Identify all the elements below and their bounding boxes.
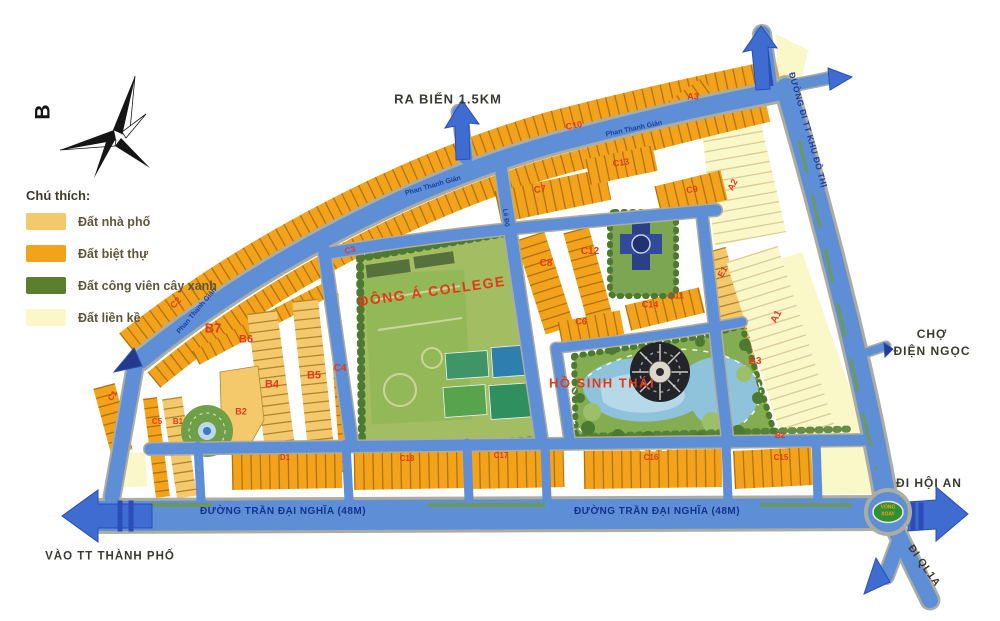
legend-item: Đất liền kề [26, 309, 217, 326]
legend-label: Đất liền kề [78, 311, 141, 325]
arrow-to-hoi-an [908, 487, 968, 541]
legend-item: Đất biệt thự [26, 245, 217, 262]
arrow-east-stub [828, 68, 852, 90]
legend-swatch [26, 245, 66, 262]
master-plan-map: RA BIỂN 1.5KMĐƯỜNG ĐI TT KHU ĐÔ THỊCHỢĐI… [0, 0, 1000, 621]
legend-swatch [26, 277, 66, 294]
legend-swatch [26, 213, 66, 230]
legend-swatch [26, 309, 66, 326]
legend-label: Đất công viên cây xanh [78, 279, 217, 293]
legend-item: Đất nhà phố [26, 213, 217, 230]
legend-title: Chú thích: [26, 188, 217, 203]
legend-label: Đất nhà phố [78, 215, 150, 229]
roundabout [866, 490, 910, 534]
compass: B [18, 38, 178, 178]
resort-island-icon [630, 342, 690, 402]
legend-item: Đất công viên cây xanh [26, 277, 217, 294]
compass-north-letter: B [32, 104, 56, 119]
legend-label: Đất biệt thự [78, 247, 148, 261]
legend: Chú thích: Đất nhà phố Đất biệt thự Đất … [26, 188, 217, 341]
